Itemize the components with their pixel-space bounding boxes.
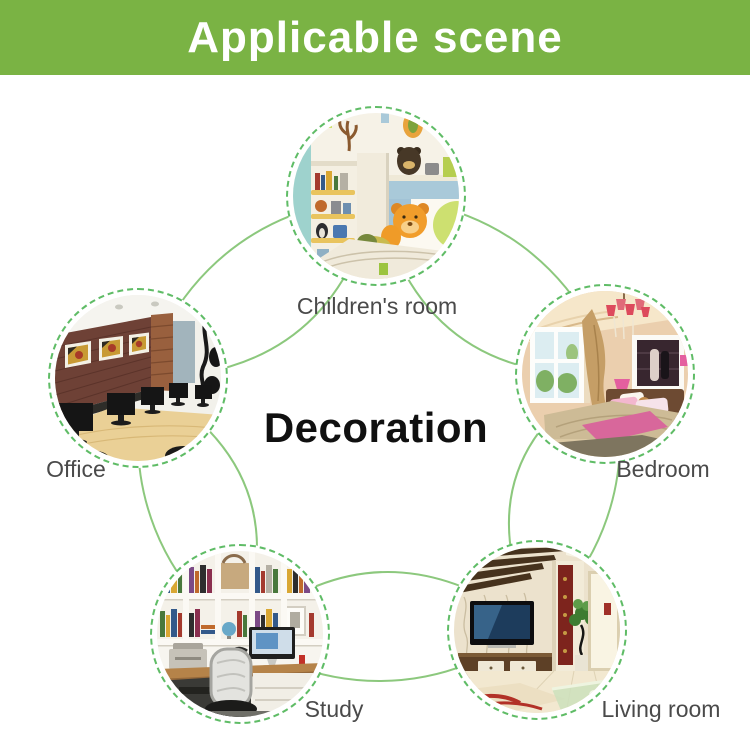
living-room-photo — [454, 547, 620, 713]
office-photo — [55, 295, 221, 461]
office-illustration — [55, 295, 221, 461]
study-photo — [157, 551, 323, 717]
applicable-scene-infographic: Applicable scene — [0, 0, 750, 750]
children-room-photo — [293, 113, 459, 279]
window-panel — [173, 321, 195, 383]
office-chair — [205, 649, 257, 717]
label-study: Study — [305, 696, 364, 723]
study-illustration — [157, 551, 323, 717]
children-room-illustration — [293, 113, 459, 279]
bookshelves — [157, 551, 323, 647]
brick-column — [151, 313, 173, 391]
printer — [169, 643, 207, 669]
doorway — [588, 571, 620, 671]
wall-picture — [632, 335, 684, 391]
scene-node-study — [150, 544, 330, 724]
scene-node-children-room — [286, 106, 466, 286]
center-title: Decoration — [264, 404, 488, 452]
label-office: Office — [46, 456, 106, 483]
living-room-illustration — [454, 547, 620, 713]
wall-tv — [470, 601, 534, 648]
label-bedroom: Bedroom — [616, 456, 709, 483]
window — [530, 327, 584, 403]
wall-sconce — [680, 355, 688, 366]
bedroom-photo — [522, 291, 688, 457]
bedroom-illustration — [522, 291, 688, 457]
scene-node-bedroom — [515, 284, 695, 464]
scene-node-living-room — [447, 540, 627, 720]
label-living-room: Living room — [602, 696, 721, 723]
label-children-room: Children's room — [297, 293, 457, 320]
scene-node-office — [48, 288, 228, 468]
